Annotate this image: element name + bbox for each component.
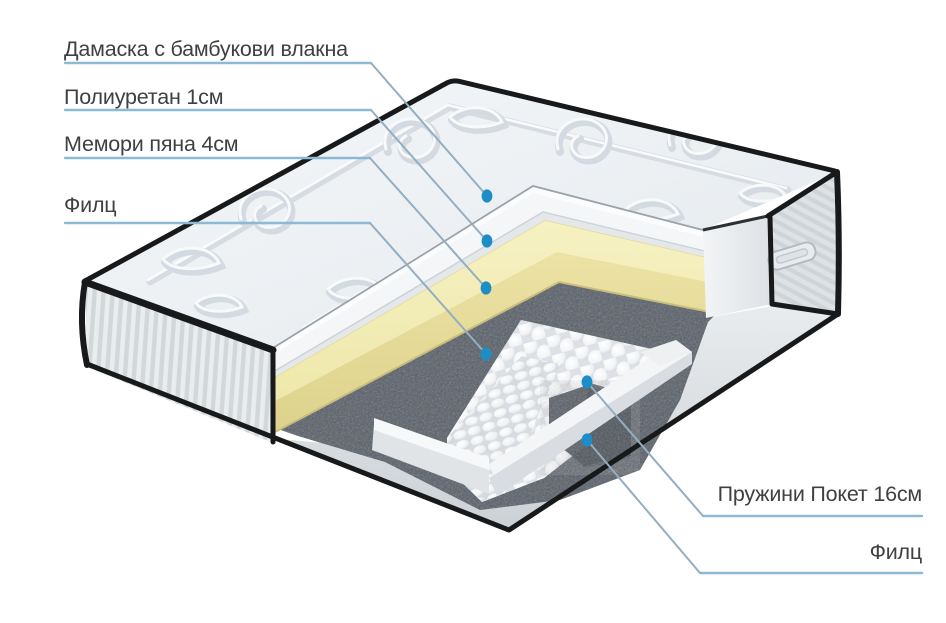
label-felt-top: Филц bbox=[64, 194, 116, 218]
label-damask-cover: Дамаска с бамбукови влакна bbox=[64, 38, 348, 62]
label-polyurethane: Полиуретан 1см bbox=[64, 86, 223, 110]
right-cut-face bbox=[703, 216, 772, 318]
marker-dot bbox=[482, 189, 493, 202]
label-pocket-springs: Пружини Покет 16см bbox=[718, 483, 922, 507]
marker-dot bbox=[482, 234, 493, 247]
marker-dot bbox=[481, 347, 492, 360]
marker-dot bbox=[582, 375, 593, 388]
label-felt-bottom: Филц bbox=[870, 541, 922, 565]
marker-dot bbox=[481, 281, 492, 294]
marker-dot bbox=[582, 433, 593, 446]
label-memory-foam: Мемори пяна 4см bbox=[64, 133, 238, 157]
mattress-cutaway-diagram: Дамаска с бамбукови влакна Полиуретан 1с… bbox=[0, 0, 946, 623]
